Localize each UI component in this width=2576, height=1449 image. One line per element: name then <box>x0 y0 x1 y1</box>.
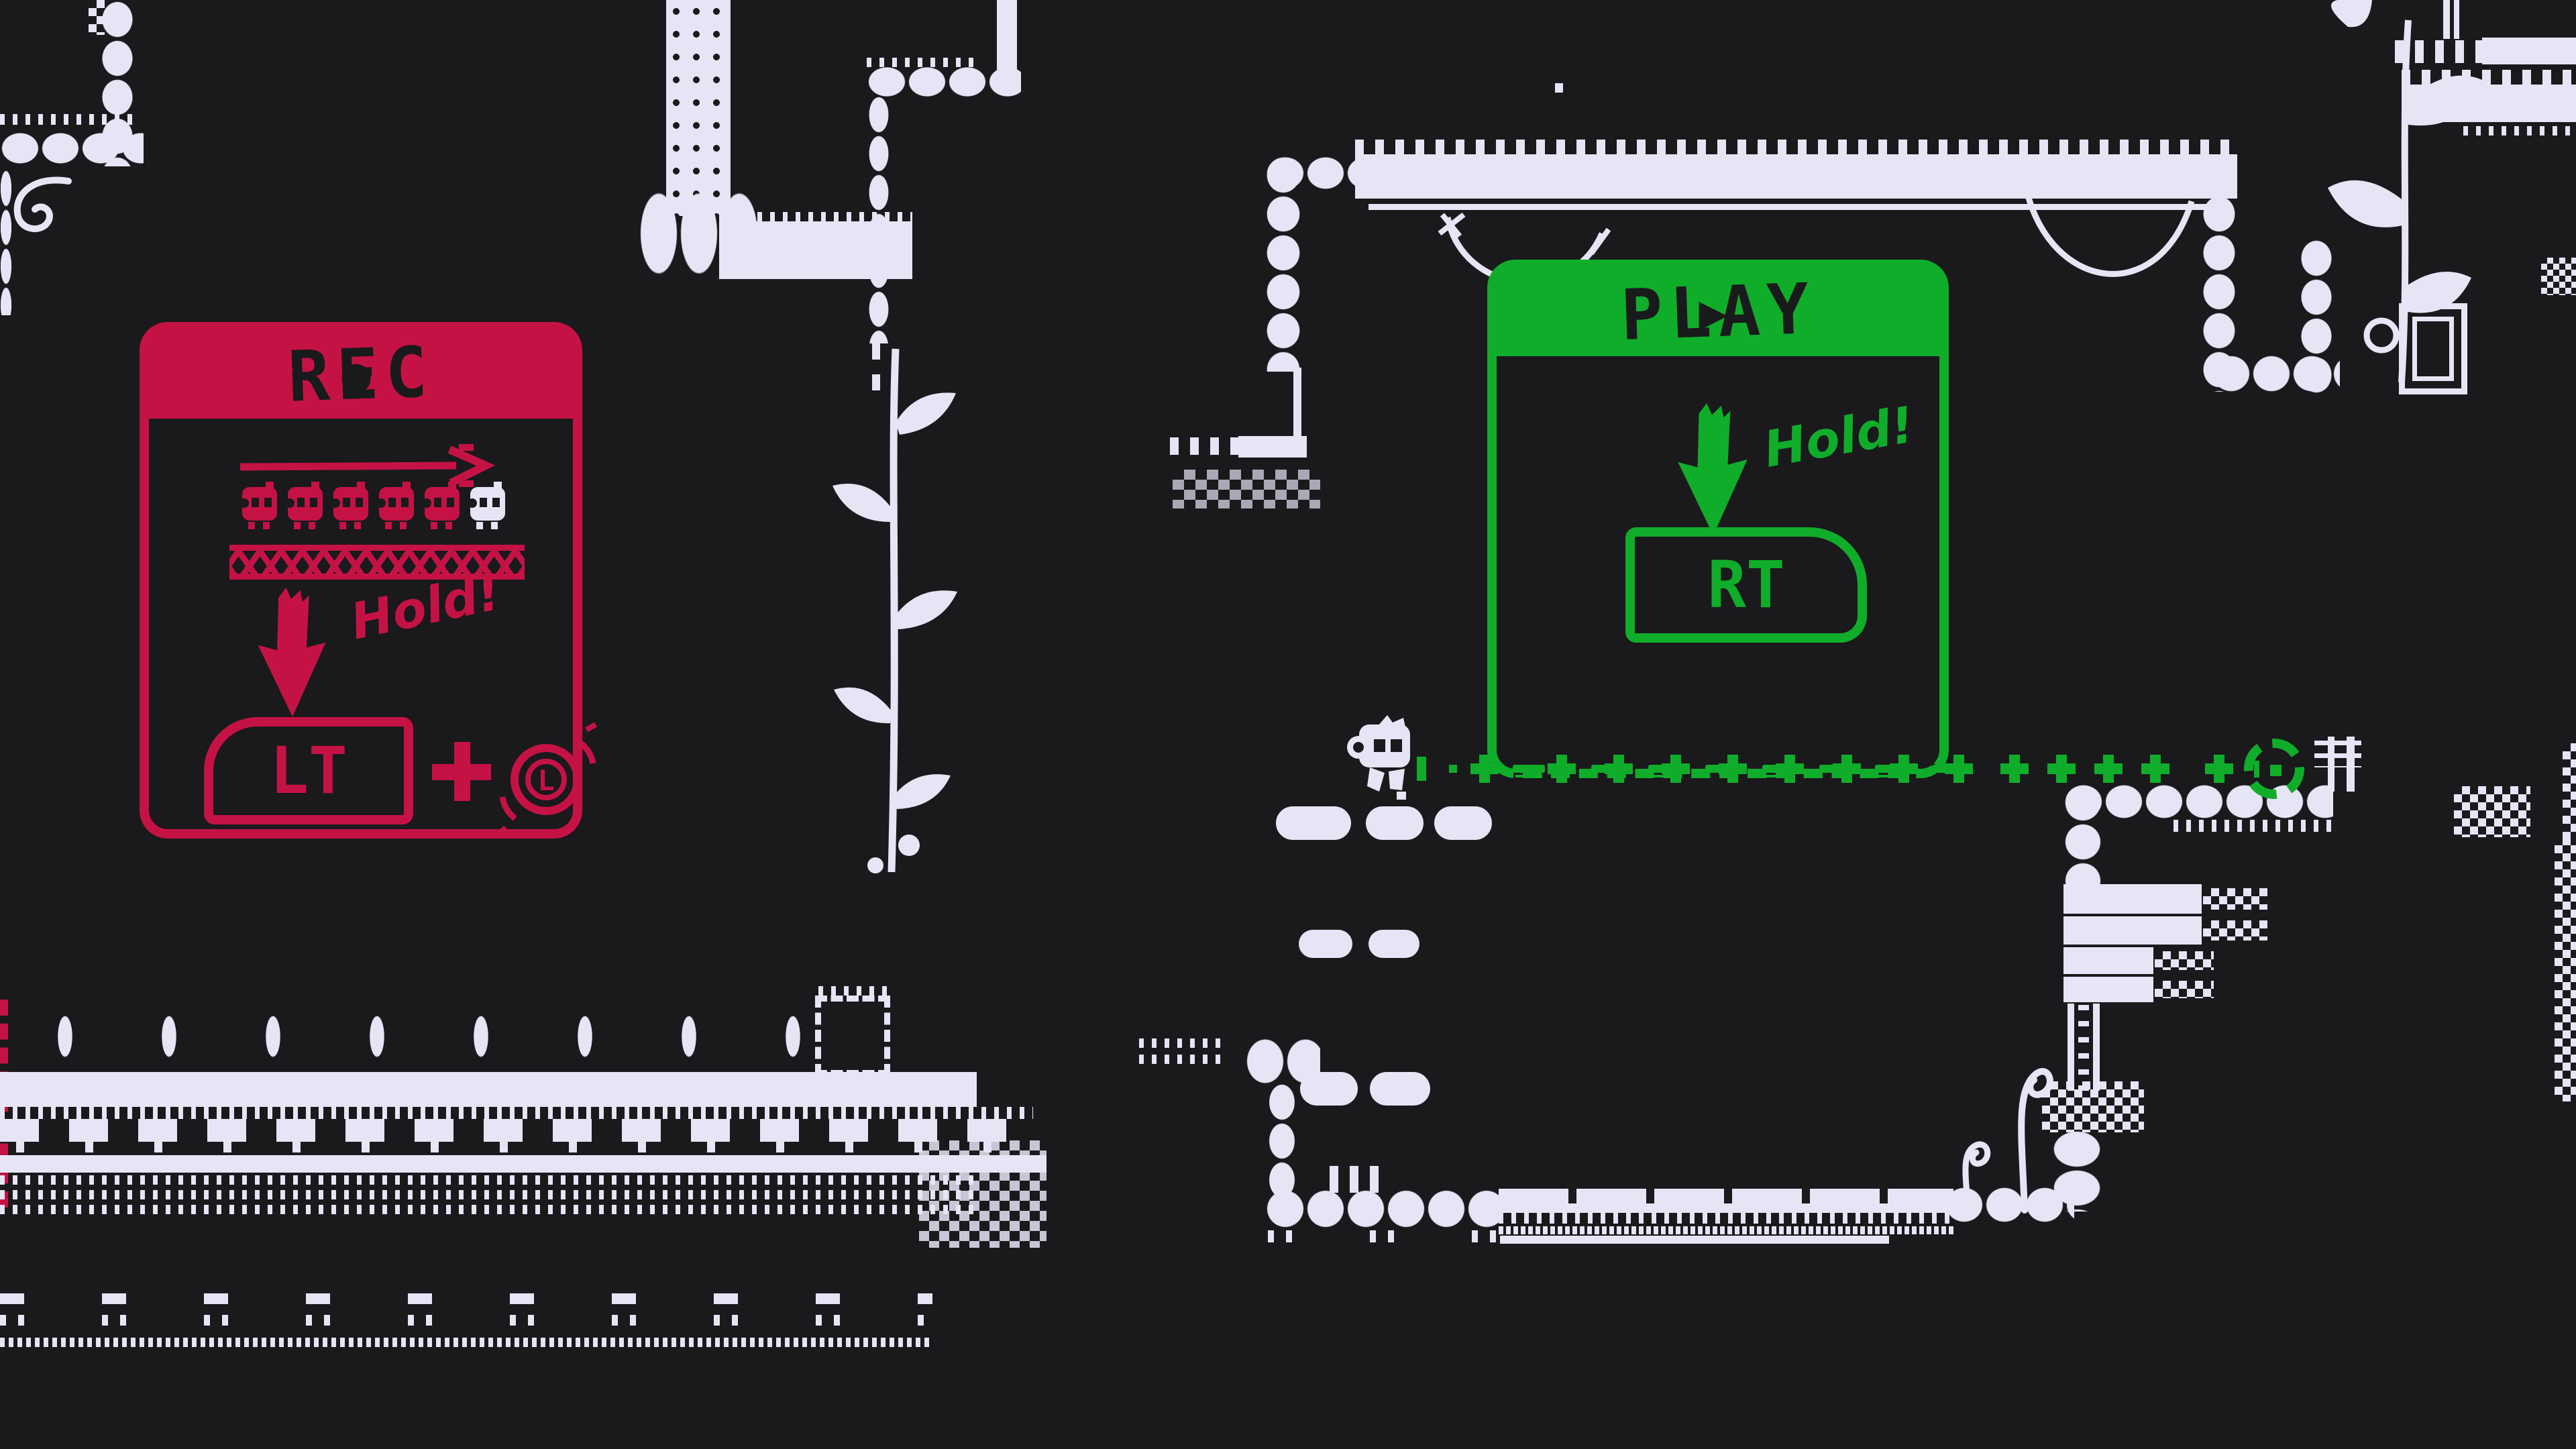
terrain-detail <box>2563 743 2576 840</box>
trajectory-plus <box>1479 763 1490 774</box>
trajectory-plus <box>2056 763 2067 774</box>
terrain-detail <box>0 114 134 125</box>
terrain-detail <box>1268 1230 1496 1242</box>
terrain-dots <box>57 1014 882 1059</box>
terrain-detail <box>2203 888 2267 910</box>
goal-reticle-icon <box>2239 734 2309 804</box>
left-trigger-button: LT <box>204 717 413 824</box>
dash-platform <box>1276 806 1351 840</box>
terrain-post <box>997 0 1017 72</box>
left-trigger-label: LT <box>270 733 347 808</box>
curl-decoration <box>1996 1059 2057 1210</box>
terrain-detail <box>0 1190 977 1199</box>
terrain-detail <box>1170 437 1240 455</box>
terrain-speck <box>1555 83 1563 93</box>
frame-robot-icon <box>240 480 279 538</box>
terrain-detail <box>1355 140 2237 156</box>
rec-panel-header: ● REC <box>148 330 574 419</box>
terrain-detail <box>0 1293 932 1304</box>
terrain-ladder <box>2068 1004 2100 1091</box>
frame-robot-icon <box>423 480 462 538</box>
terrain-edge <box>1265 156 1301 372</box>
terrain-detail <box>1499 1189 1953 1203</box>
dash-platform <box>1434 806 1492 840</box>
terrain-ledge <box>867 66 1021 98</box>
terrain-detail <box>1139 1038 1228 1048</box>
terrain-detail <box>2155 951 2214 970</box>
vine-plant <box>828 349 963 885</box>
terrain-detail <box>1499 1226 1953 1234</box>
terrain-detail <box>1500 1236 1889 1244</box>
svg-text:L: L <box>537 764 554 797</box>
right-trigger-button: RT <box>1625 527 1867 643</box>
terrain-detail <box>1293 368 1301 441</box>
terrain-platform <box>0 1072 977 1107</box>
trajectory-sdot <box>1449 765 1457 773</box>
terrain-bar <box>2063 947 2153 974</box>
robot-sprite <box>1348 714 1419 808</box>
recorded-frames-strip <box>240 480 522 538</box>
terrain-detail <box>0 1142 1033 1152</box>
trajectory-plus <box>2009 763 2020 774</box>
terrain-detail <box>89 0 105 35</box>
terrain-detail <box>0 1107 1033 1119</box>
terrain-floor <box>1265 1189 1501 1229</box>
play-tutorial-panel: ▶ PLAY Hold! RT <box>1487 260 1949 778</box>
frame-robot-icon <box>286 480 325 538</box>
hanging-vine <box>2009 161 2200 332</box>
dash-platform <box>1368 930 1419 958</box>
trajectory-plus <box>2150 763 2161 774</box>
terrain-bar <box>2063 916 2202 945</box>
right-trigger-label: RT <box>1707 547 1785 623</box>
dash-platform <box>1366 806 1424 840</box>
terrain-detail <box>1173 470 1320 508</box>
curl-decoration <box>9 174 74 236</box>
play-panel-title: PLAY <box>1619 268 1817 356</box>
rec-tutorial-panel: ● REC Hold! LT L <box>140 322 582 839</box>
terrain-detail <box>0 1315 932 1326</box>
rec-panel-title: REC <box>286 331 435 418</box>
trajectory-plus <box>2103 763 2114 774</box>
terrain-detail <box>818 986 887 996</box>
game-viewport[interactable]: ● REC Hold! LT L ▶ <box>0 0 2576 1449</box>
dash-platform <box>1299 930 1352 958</box>
frame-robot-icon <box>331 480 370 538</box>
terrain-detail <box>0 1119 1033 1142</box>
terrain-detail <box>1499 1213 1953 1224</box>
terrain-platform <box>0 1155 1046 1173</box>
terrain-bar <box>2063 884 2202 914</box>
hold-label: Hold! <box>1760 396 1918 479</box>
door-outline <box>815 996 890 1076</box>
terrain-detail <box>2555 837 2576 1102</box>
terrain-frame <box>2412 317 2454 381</box>
terrain-detail <box>0 1205 977 1214</box>
terrain-detail <box>2541 258 2576 295</box>
terrain-bar <box>2063 977 2153 1002</box>
terrain-detail <box>2042 1081 2144 1132</box>
terrain-edge <box>0 131 144 165</box>
terrain-detail <box>2173 820 2333 832</box>
play-panel-header: ▶ PLAY <box>1495 268 1941 356</box>
down-arrow-icon <box>1672 402 1754 539</box>
terrain-detail <box>2203 920 2267 941</box>
down-arrow-icon <box>250 586 335 720</box>
frame-robot-icon <box>377 480 416 538</box>
trajectory-plus <box>2214 763 2224 774</box>
terrain-detail <box>2454 786 2530 837</box>
terrain-detail <box>2155 981 2214 998</box>
frame-robot-current-icon <box>468 480 507 538</box>
terrain-detail <box>0 1175 977 1185</box>
terrain-edge <box>868 95 890 343</box>
dash-platform <box>1370 1072 1430 1106</box>
terrain-edge <box>1268 1083 1296 1197</box>
terrain-detail <box>1139 1055 1228 1064</box>
left-stick-icon: L <box>498 720 598 835</box>
trajectory-plus <box>1953 763 1964 774</box>
dash-platform <box>1300 1072 1358 1106</box>
curl-decoration <box>1948 1127 1995 1210</box>
terrain-ledge <box>1238 436 1307 458</box>
terrain-detail <box>666 0 731 216</box>
terrain-detail <box>0 1338 932 1347</box>
terrain-bar <box>2482 38 2576 64</box>
plus-icon <box>432 742 491 801</box>
